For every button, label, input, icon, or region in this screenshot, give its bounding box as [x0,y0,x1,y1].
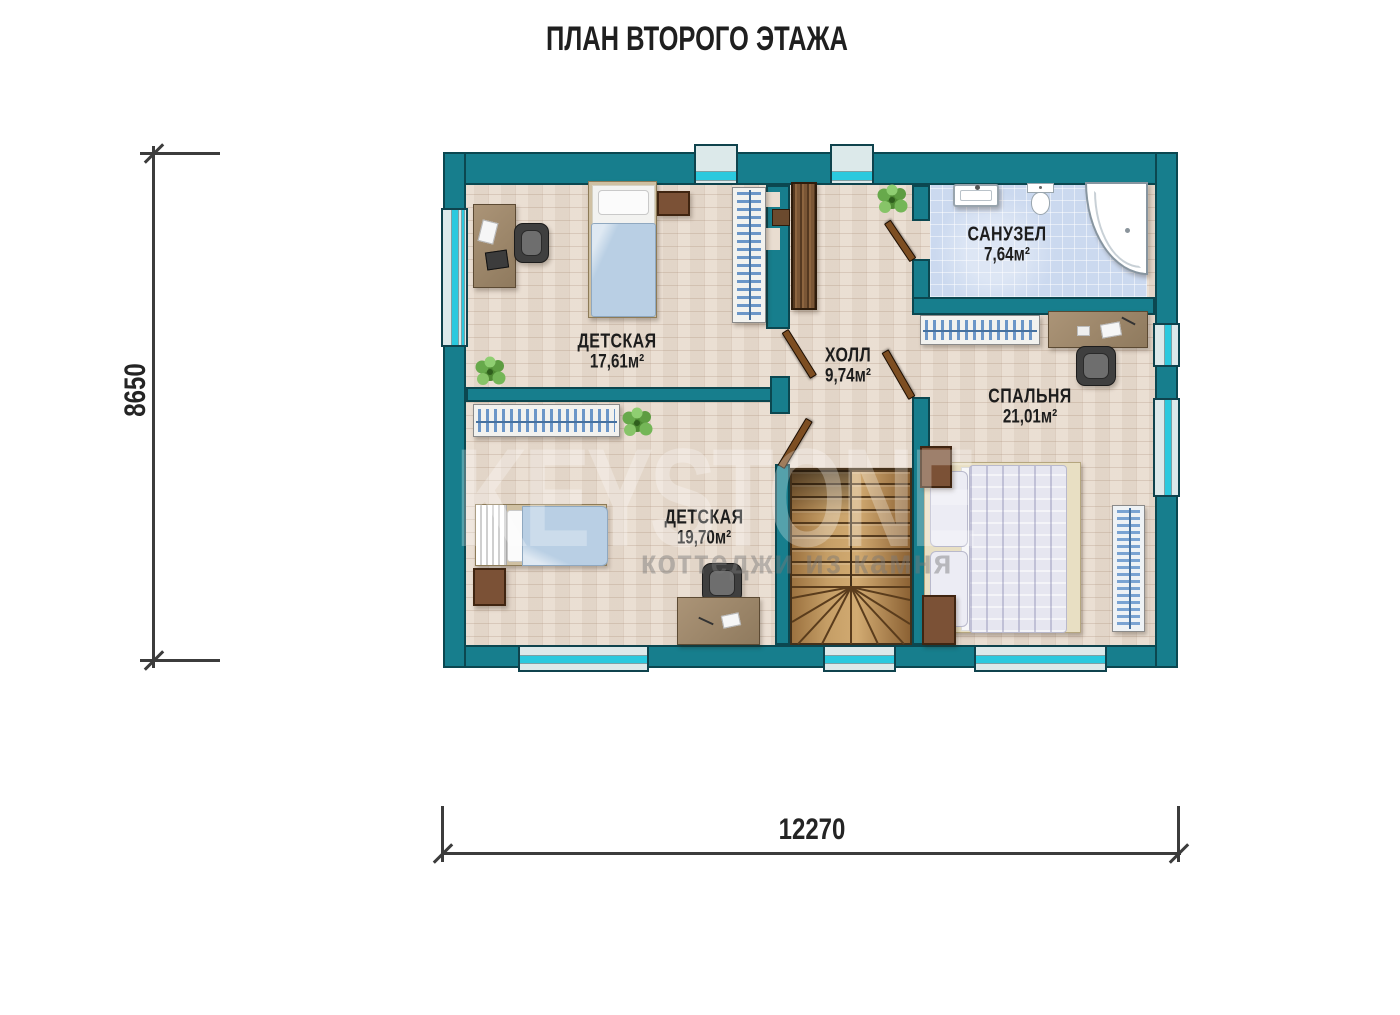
desk-chair [514,223,549,263]
blanket [522,506,608,566]
window-glass [1165,400,1171,495]
window-top-1 [694,144,738,185]
window-right-1 [1153,323,1180,367]
single-bed [588,181,657,318]
plant-icon [471,353,509,391]
wardrobe-wood [791,182,817,310]
room-name: САНУЗЕЛ [968,225,1047,246]
toilet-bowl [1031,192,1050,215]
wall-nursery-divider [466,387,772,402]
stair-divider [850,470,852,586]
headboard [476,505,507,565]
dim-width-label: 12270 [779,813,846,847]
wardrobe-rack [920,315,1040,345]
wardrobe-rack [732,187,766,323]
pen [698,617,713,626]
desk-chair [1076,346,1116,386]
stair-shadow [792,470,850,516]
room-name: СПАЛЬНЯ [988,387,1071,408]
room-label-bathroom: САНУЗЕЛ 7,64м² [968,225,1047,266]
rack-rail [923,330,1037,332]
window-glass [452,210,458,345]
room-label-nursery1: ДЕТСКАЯ 17,61м² [577,332,656,373]
wall-stub-t [770,376,790,414]
paper [478,219,499,244]
room-area: 19,70м² [664,529,743,549]
wall-bathroom-left-upper [912,185,930,221]
plant-icon [873,181,911,219]
nightstand [657,191,690,216]
wardrobe-rack [473,404,620,437]
plant-icon [618,404,656,442]
wall-niche-top [766,192,780,207]
wall-niche-bottom [766,228,780,250]
room-area: 17,61м² [577,353,656,373]
pen [1121,317,1135,326]
window-glass [1165,325,1171,365]
stair-winders [792,586,910,645]
duct-block [772,209,790,226]
blanket [591,223,656,317]
room-label-hall: ХОЛЛ 9,74м² [825,346,871,387]
dim-bottom-line [441,852,1181,855]
window-right-2 [1153,398,1180,497]
window-bottom-2 [823,645,896,672]
window-bottom-1 [518,645,649,672]
desk [473,204,516,288]
paper [721,612,741,628]
dim-height-label: 8650 [119,363,153,416]
nightstand [920,446,952,488]
floor-plan: ДЕТСКАЯ 17,61м² ХОЛЛ 9,74м² САНУЗЕЛ 7,64… [441,144,1180,674]
window-glass [520,656,647,663]
laptop [485,250,509,271]
room-label-bedroom: СПАЛЬНЯ 21,01м² [988,387,1071,428]
window-glass [696,172,736,180]
room-area: 9,74м² [825,367,871,387]
toilet-button [1039,186,1042,189]
radiator [1112,505,1145,632]
room-label-nursery2: ДЕТСКАЯ 19,70м² [664,508,743,549]
window-glass [825,656,894,663]
nightstand [922,595,956,645]
window-glass [976,656,1105,663]
room-name: ДЕТСКАЯ [664,508,743,529]
room-area: 7,64м² [968,246,1047,266]
duvet [969,465,1067,633]
paper [1100,321,1122,338]
rack-rail [476,421,617,423]
staircase [790,468,912,645]
room-name: ДЕТСКАЯ [577,332,656,353]
sink-basin [960,190,992,201]
window-bottom-3 [974,645,1107,672]
sink [953,184,999,207]
desk [677,597,760,645]
radiator-pipe [1129,508,1131,629]
rack-rail [749,190,751,320]
window-left [441,208,468,347]
toilet [1027,183,1054,216]
window-top-2 [830,144,874,185]
window-glass [462,210,464,345]
pillow [598,190,649,215]
page-title: ПЛАН ВТОРОГО ЭТАЖА [546,20,848,59]
faucet [975,185,980,190]
notebook [1077,326,1090,336]
nightstand [473,568,506,606]
room-area: 21,01м² [988,408,1071,428]
wall-top [443,152,1178,185]
bathtub-drain [1125,228,1130,233]
wall-nursery2-stairs [775,464,790,645]
window-glass [832,172,872,180]
room-name: ХОЛЛ [825,346,871,367]
single-bed [475,504,607,566]
desk [1048,311,1148,348]
